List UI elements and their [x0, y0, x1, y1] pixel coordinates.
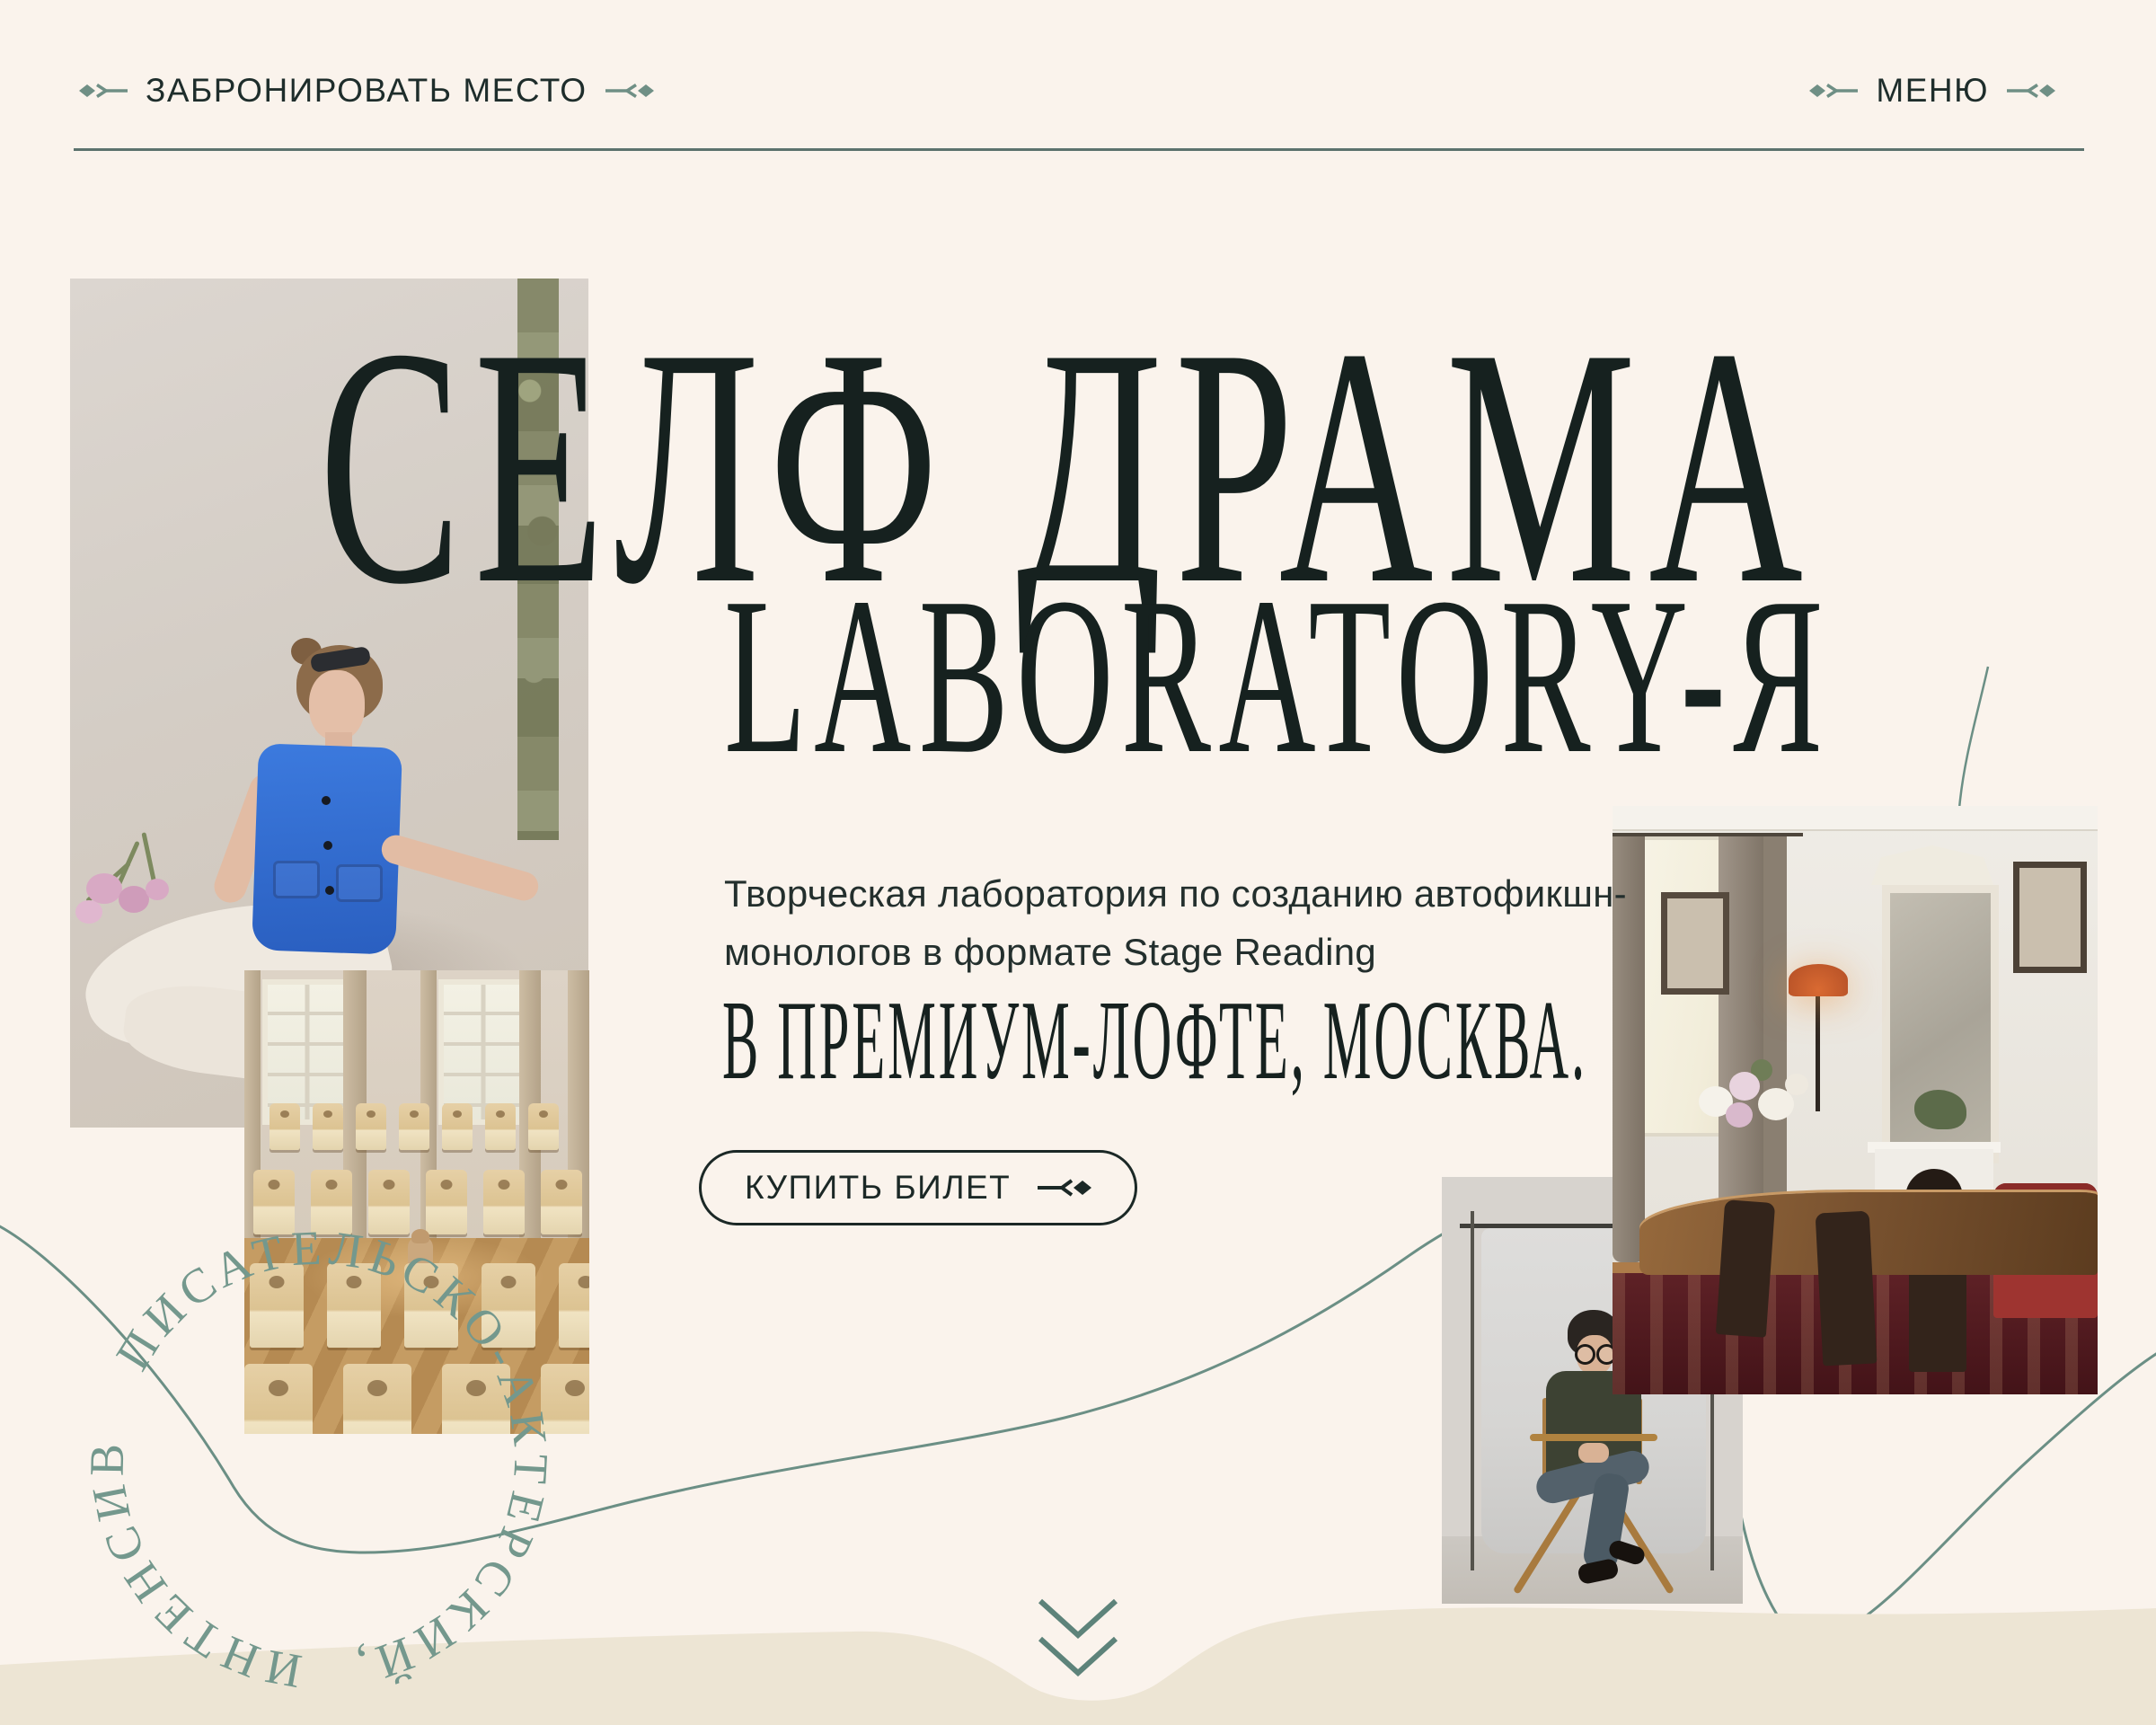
bloom — [1726, 1102, 1753, 1128]
chair — [559, 1263, 589, 1348]
nav-book-label: ЗАБРОНИРОВАТЬ МЕСТО — [146, 72, 588, 110]
flower — [146, 879, 169, 900]
arrow-left-diamond-icon — [605, 82, 654, 100]
arrow-diamond-icon — [1038, 1177, 1091, 1199]
vest-button — [325, 886, 334, 895]
framed-picture — [2013, 862, 2087, 973]
nav-menu-label: МЕНЮ — [1876, 72, 1989, 110]
small-right-line — [1959, 667, 1988, 809]
ring-text: ПИСАТЕЛЬСКО-АКТЕРСКИЙ, ИНТЕНСИВ — [85, 1226, 552, 1694]
vest-pocket — [336, 864, 383, 902]
description-line-1: Творческая лаборатория по созданию автоф… — [724, 864, 1627, 923]
page-title-line-2: LABORATORY-Я — [724, 564, 1831, 789]
nav-book-seat-link[interactable]: ЗАБРОНИРОВАТЬ МЕСТО — [79, 72, 654, 110]
framed-picture — [1661, 892, 1729, 995]
location-line: В ПРЕМИУМ-ЛОФТЕ, МОСКВА. — [722, 985, 1587, 1098]
bouquet — [1699, 1072, 1816, 1162]
mirror-pediment — [1871, 845, 1993, 885]
chair — [485, 1103, 516, 1150]
chair — [368, 1170, 410, 1234]
landing-page: ЗАБРОНИРОВАТЬ МЕСТО МЕНЮ СЕЛФ ДРАМА LABO — [0, 0, 2156, 1725]
chair — [483, 1170, 525, 1234]
chair-row — [269, 1103, 559, 1150]
chair — [442, 1103, 473, 1150]
plant — [1914, 1090, 1966, 1129]
chair — [311, 1170, 352, 1234]
chair — [356, 1103, 386, 1150]
chair — [269, 1103, 300, 1150]
chair — [313, 1103, 343, 1150]
description-line-2: монологов в формате Stage Reading — [724, 923, 1627, 981]
bloom — [1785, 1074, 1808, 1095]
diamond-arrow-right-icon — [1809, 82, 1858, 100]
dark-chair — [1816, 1211, 1878, 1367]
chair — [528, 1103, 559, 1150]
arrow-left-diamond-icon — [2007, 82, 2055, 100]
hero-description: Творческая лаборатория по созданию автоф… — [724, 864, 1627, 981]
chair — [541, 1170, 582, 1234]
bloom — [1729, 1072, 1760, 1101]
tiffany-lamp — [1789, 964, 1848, 996]
arm — [378, 832, 542, 904]
rotating-text-badge: ПИСАТЕЛЬСКО-АКТЕРСКИЙ, ИНТЕНСИВ — [85, 1226, 552, 1694]
flower — [86, 873, 122, 904]
flower — [119, 886, 149, 913]
chair — [253, 1170, 295, 1234]
chair-armrest — [1530, 1434, 1657, 1441]
chair — [399, 1103, 429, 1150]
diamond-arrow-right-icon — [79, 82, 128, 100]
vest-button — [322, 796, 331, 805]
gray-curtain — [1763, 836, 1787, 1241]
chair-row — [253, 1170, 582, 1234]
hands — [1578, 1443, 1609, 1463]
face — [309, 670, 365, 740]
ceiling-cornice — [1613, 806, 2098, 831]
svg-text:ПИСАТЕЛЬСКО-АКТЕРСКИЙ, ИНТЕНСИ: ПИСАТЕЛЬСКО-АКТЕРСКИЙ, ИНТЕНСИВ — [85, 1226, 552, 1694]
dark-chair — [1716, 1199, 1775, 1338]
photo-loft-interior — [1613, 806, 2098, 1394]
vest-button — [323, 841, 332, 850]
buy-ticket-button[interactable]: КУПИТЬ БИЛЕТ — [699, 1150, 1137, 1225]
flower — [75, 900, 102, 924]
glasses — [1575, 1344, 1595, 1365]
chair — [426, 1170, 467, 1234]
vest-pocket — [273, 861, 320, 898]
double-chevron-down-icon[interactable] — [1033, 1597, 1123, 1676]
header-divider — [74, 148, 2084, 151]
backdrop-stand — [1471, 1211, 1474, 1570]
floor-lamp-stem — [1816, 995, 1820, 1111]
buy-ticket-label: КУПИТЬ БИЛЕТ — [745, 1169, 1011, 1207]
nav-menu-button[interactable]: МЕНЮ — [1809, 72, 2055, 110]
